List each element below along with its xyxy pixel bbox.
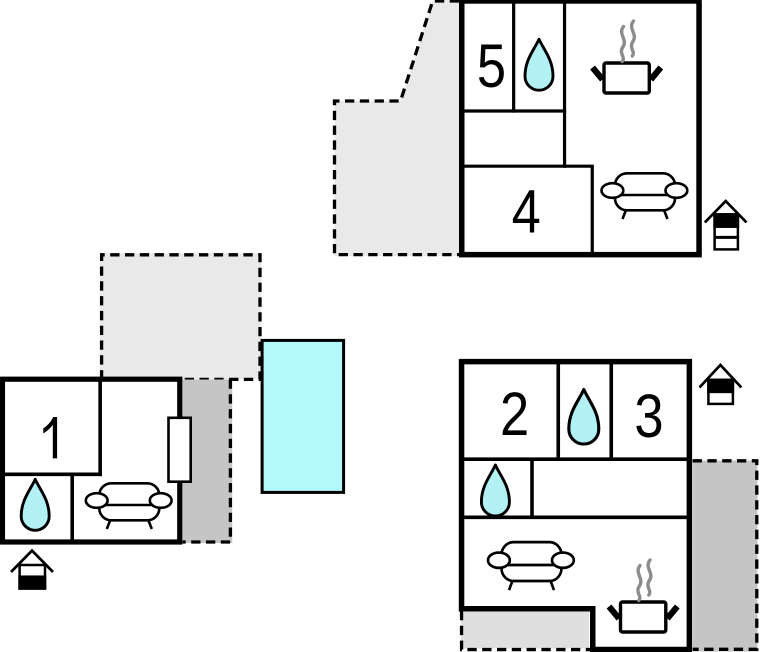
svg-text:4: 4 (512, 178, 541, 247)
svg-text:2: 2 (500, 381, 529, 450)
svg-text:5: 5 (477, 32, 506, 101)
svg-text:3: 3 (634, 382, 663, 451)
